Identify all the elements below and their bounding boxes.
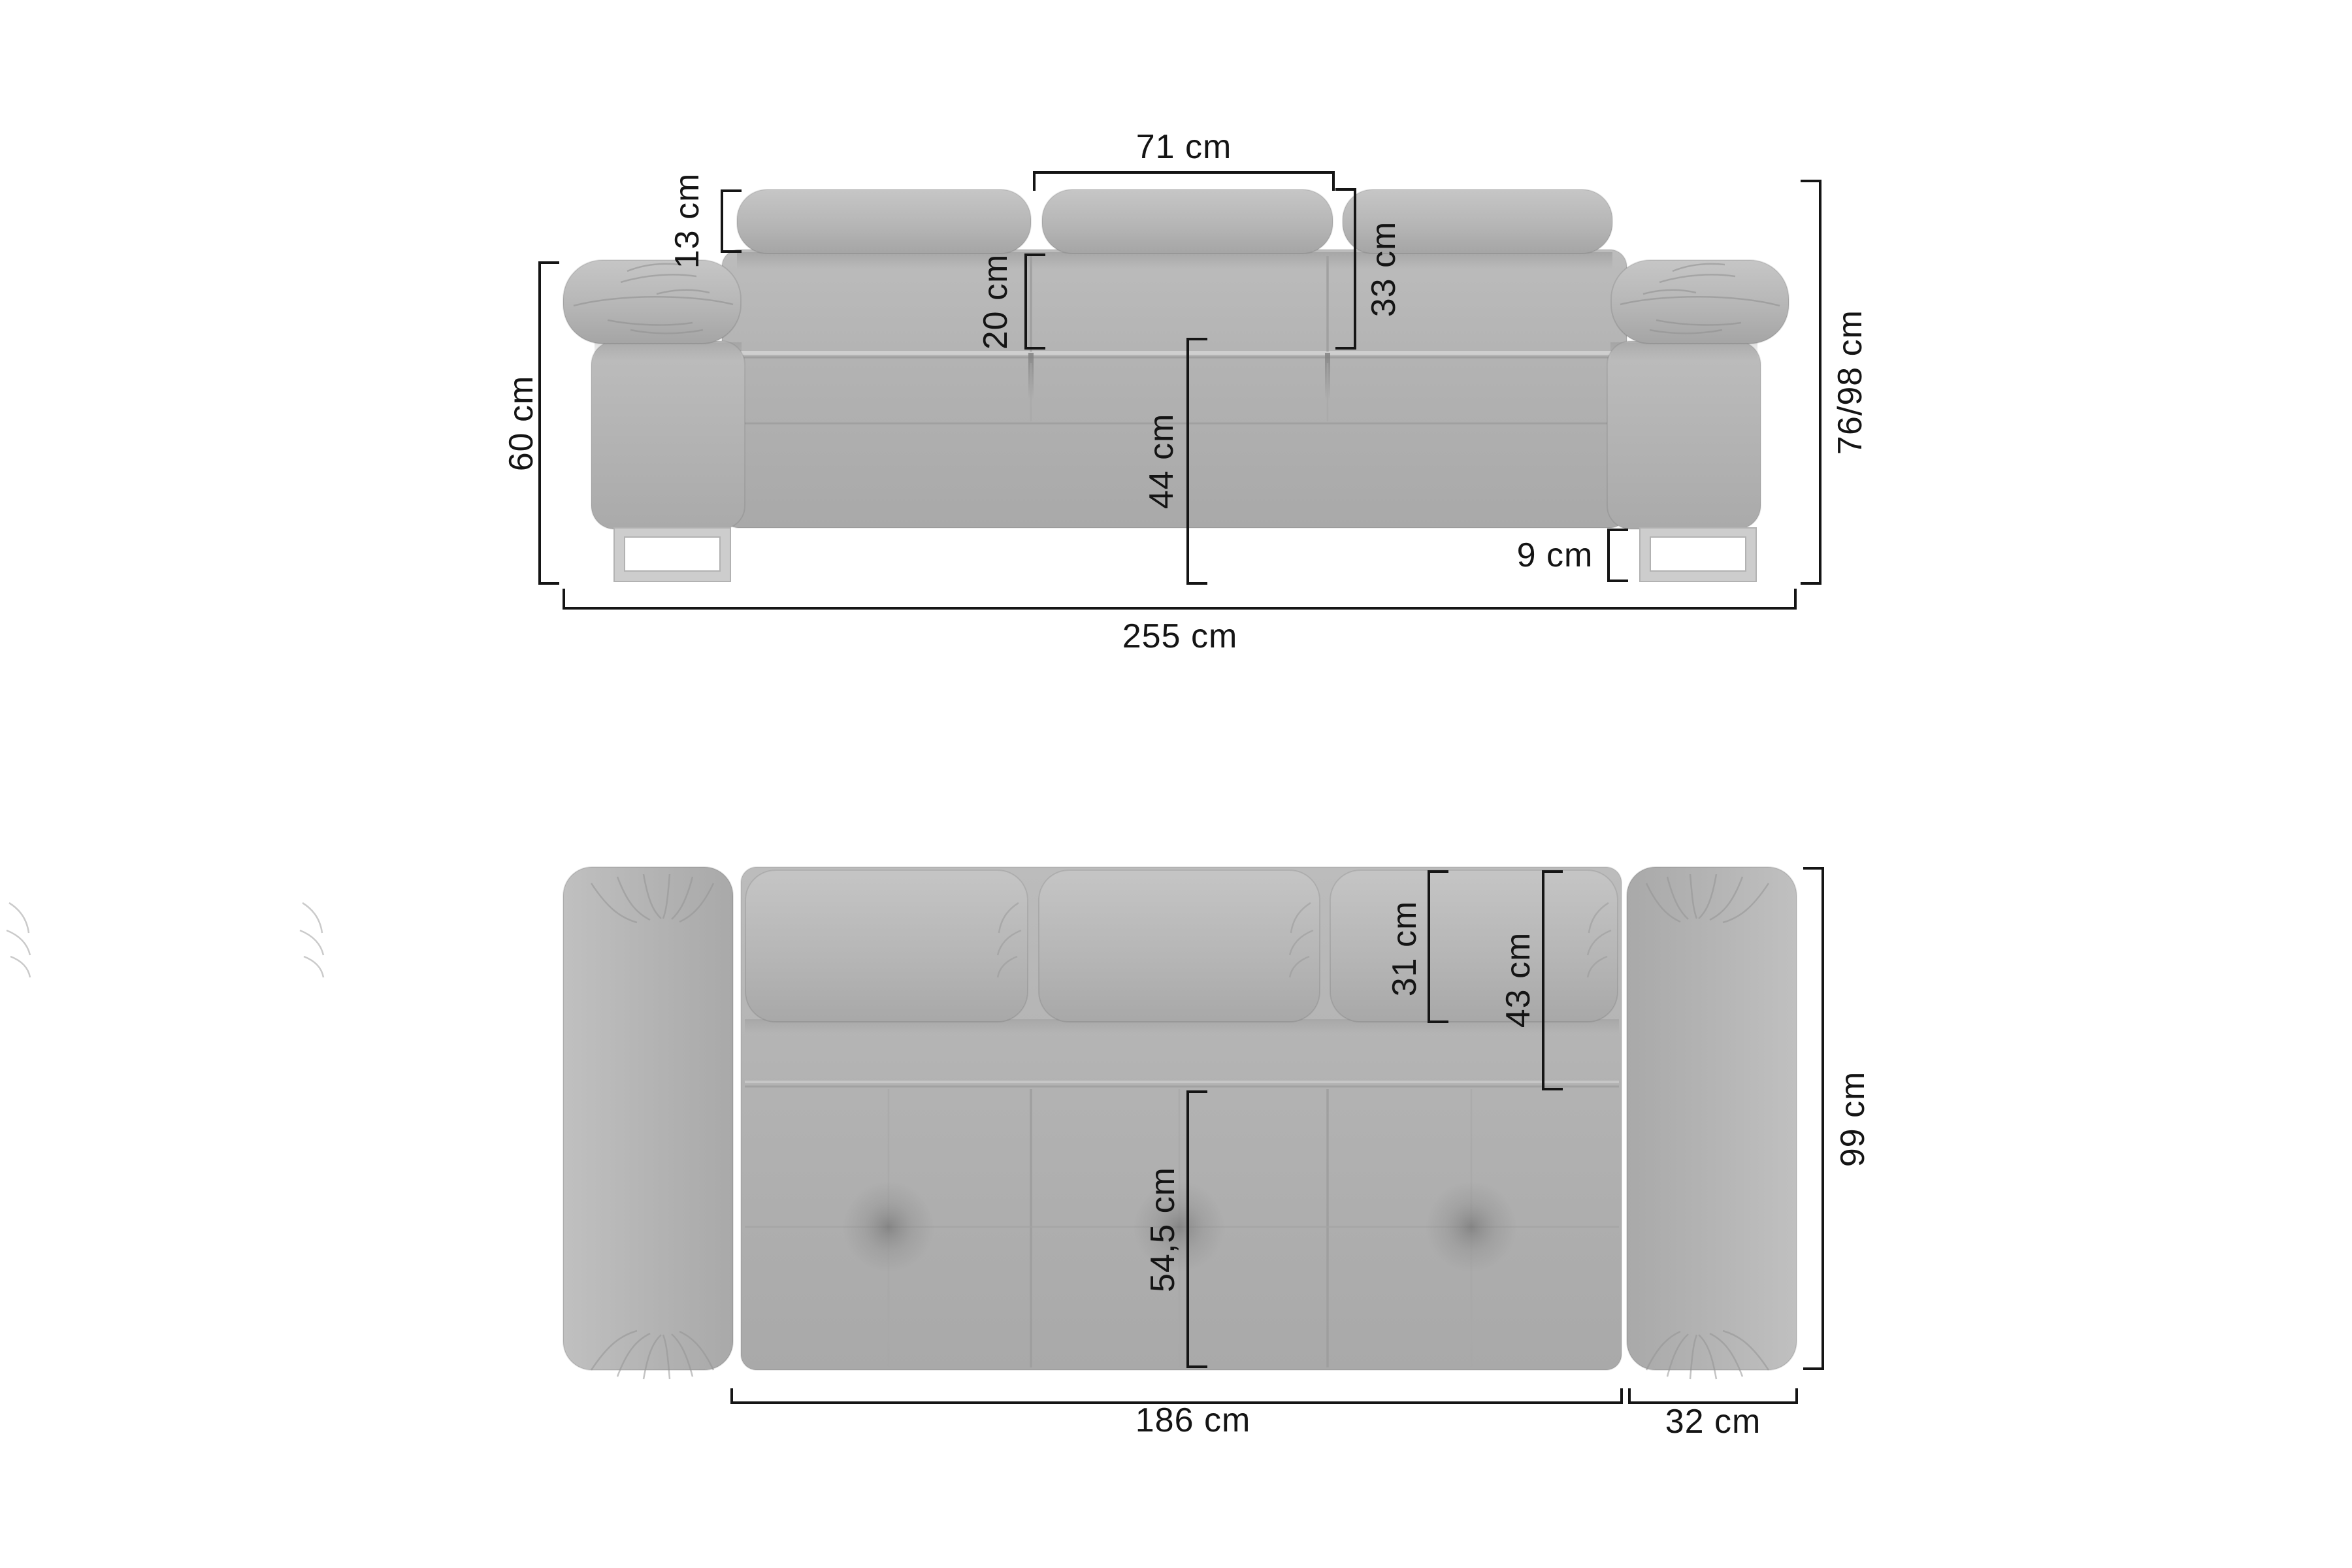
sofa-dimension-diagram: 71 cm 13 cm 20 cm 33 cm 60 cm 76/98 cm 4… xyxy=(0,0,2352,1568)
dim-label-total-height: 76/98 cm xyxy=(1833,310,1867,455)
top-right-armrest xyxy=(1627,867,1797,1379)
dim-label-backrest-upper-height: 20 cm xyxy=(979,254,1013,350)
bracket-armrest-width xyxy=(1629,1390,1797,1403)
sofa-illustration xyxy=(0,0,2352,1568)
bracket-headrest-width xyxy=(1034,172,1333,189)
dim-label-leg-height: 9 cm xyxy=(1517,538,1593,572)
bracket-total-depth xyxy=(1805,868,1823,1369)
bracket-total-height xyxy=(1802,181,1820,583)
dim-label-armrest-height: 60 cm xyxy=(504,376,538,472)
top-left-armrest xyxy=(563,867,733,1379)
dim-label-back-cushion-depth: 31 cm xyxy=(1388,901,1422,997)
dim-label-armrest-width: 32 cm xyxy=(1665,1405,1761,1439)
dim-label-backrest-depth: 43 cm xyxy=(1501,932,1535,1028)
dim-label-seat-height: 44 cm xyxy=(1145,414,1179,510)
dim-label-headrest-height: 13 cm xyxy=(670,173,704,269)
headrest-pillows xyxy=(737,189,1612,253)
back-cushions xyxy=(7,870,1618,1022)
bracket-total-width xyxy=(564,590,1795,608)
front-view-sofa xyxy=(563,189,1789,581)
dim-label-total-width: 255 cm xyxy=(1122,619,1238,653)
dim-label-headrest-width: 71 cm xyxy=(1136,130,1232,164)
dim-label-headrest-to-seat: 33 cm xyxy=(1367,221,1401,318)
dim-label-seat-width: 186 cm xyxy=(1135,1403,1251,1437)
bracket-leg-height xyxy=(1609,530,1627,581)
bracket-seat-width xyxy=(732,1390,1622,1403)
bracket-armrest-height xyxy=(540,263,558,583)
dim-label-seat-depth: 54,5 cm xyxy=(1146,1167,1180,1292)
dim-label-total-depth: 99 cm xyxy=(1836,1071,1870,1168)
right-armrest xyxy=(1607,260,1789,529)
left-armrest xyxy=(563,260,745,529)
